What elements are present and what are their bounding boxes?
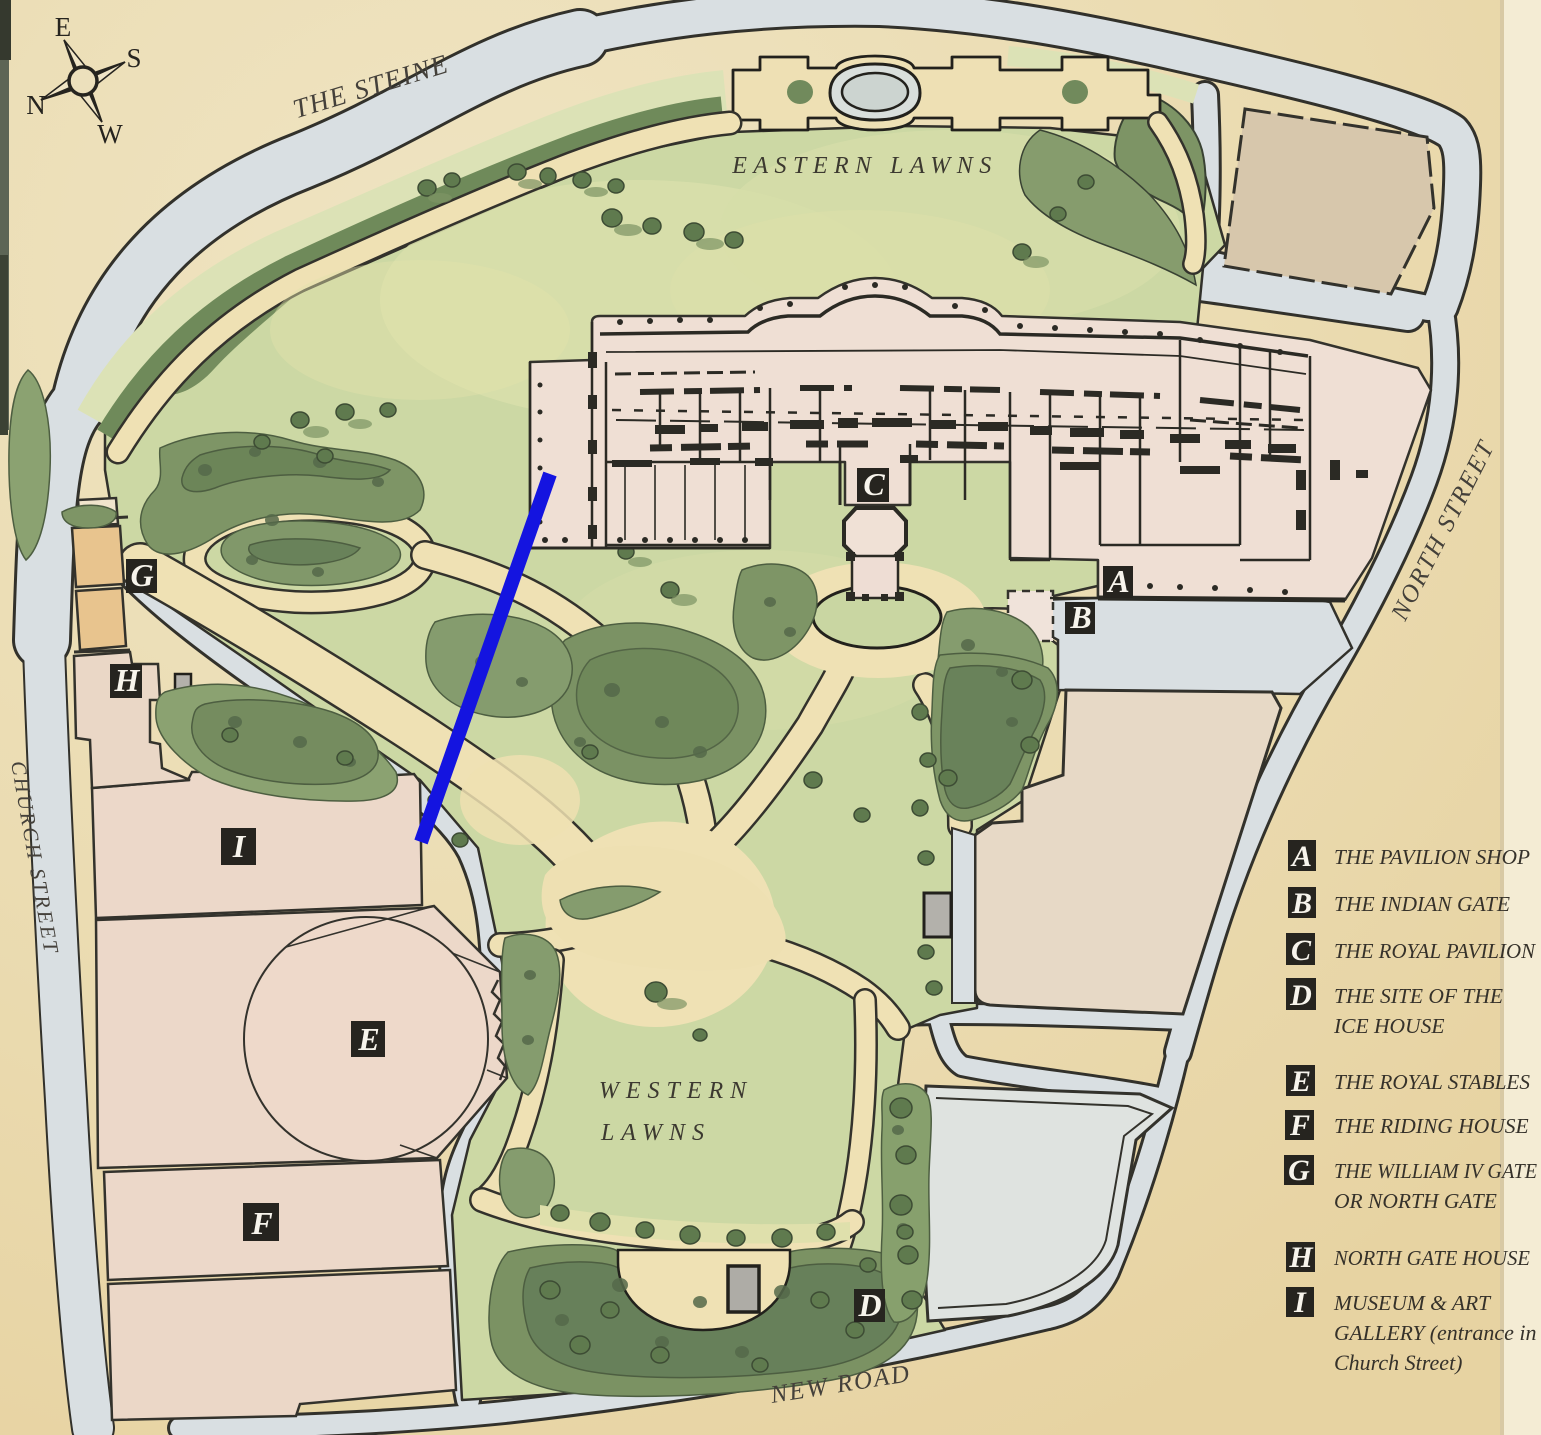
svg-text:I: I — [232, 828, 247, 864]
svg-text:OR NORTH GATE: OR NORTH GATE — [1334, 1189, 1497, 1213]
svg-text:B: B — [1291, 887, 1312, 920]
svg-text:D: D — [857, 1287, 881, 1323]
svg-text:THE WILLIAM IV GATE: THE WILLIAM IV GATE — [1334, 1159, 1537, 1183]
svg-text:THE SITE OF THE: THE SITE OF THE — [1334, 984, 1503, 1008]
svg-text:G: G — [130, 557, 153, 593]
svg-text:I: I — [1293, 1286, 1307, 1319]
svg-text:C: C — [863, 466, 885, 502]
svg-text:Church Street): Church Street) — [1334, 1350, 1462, 1375]
svg-text:MUSEUM & ART: MUSEUM & ART — [1333, 1291, 1492, 1315]
svg-text:H: H — [114, 662, 141, 698]
svg-text:THE ROYAL PAVILION: THE ROYAL PAVILION — [1334, 939, 1537, 963]
svg-text:E: E — [1290, 1065, 1311, 1098]
svg-text:C: C — [1291, 934, 1312, 967]
svg-text:H: H — [1288, 1241, 1314, 1274]
svg-text:S: S — [126, 43, 141, 73]
svg-text:ICE HOUSE: ICE HOUSE — [1333, 1014, 1444, 1038]
svg-text:E: E — [55, 12, 72, 42]
svg-text:LAWNS: LAWNS — [600, 1120, 711, 1146]
svg-text:W: W — [97, 119, 123, 149]
svg-text:A: A — [1106, 563, 1129, 599]
svg-text:THE INDIAN GATE: THE INDIAN GATE — [1334, 892, 1510, 916]
svg-text:G: G — [1288, 1154, 1310, 1187]
svg-text:GALLERY (entrance in: GALLERY (entrance in — [1334, 1320, 1537, 1345]
svg-text:EASTERN LAWNS: EASTERN LAWNS — [731, 153, 998, 179]
svg-text:THE ROYAL STABLES: THE ROYAL STABLES — [1334, 1070, 1530, 1094]
svg-text:WESTERN: WESTERN — [599, 1078, 753, 1104]
svg-text:THE RIDING HOUSE: THE RIDING HOUSE — [1334, 1114, 1529, 1138]
svg-text:F: F — [1289, 1109, 1310, 1142]
svg-text:D: D — [1289, 979, 1312, 1012]
svg-text:E: E — [357, 1021, 379, 1057]
svg-text:A: A — [1290, 840, 1312, 873]
svg-text:NORTH GATE HOUSE: NORTH GATE HOUSE — [1333, 1246, 1530, 1270]
svg-text:B: B — [1069, 599, 1091, 635]
svg-text:N: N — [26, 90, 46, 120]
svg-text:F: F — [250, 1205, 272, 1241]
svg-text:THE PAVILION SHOP: THE PAVILION SHOP — [1334, 845, 1530, 869]
